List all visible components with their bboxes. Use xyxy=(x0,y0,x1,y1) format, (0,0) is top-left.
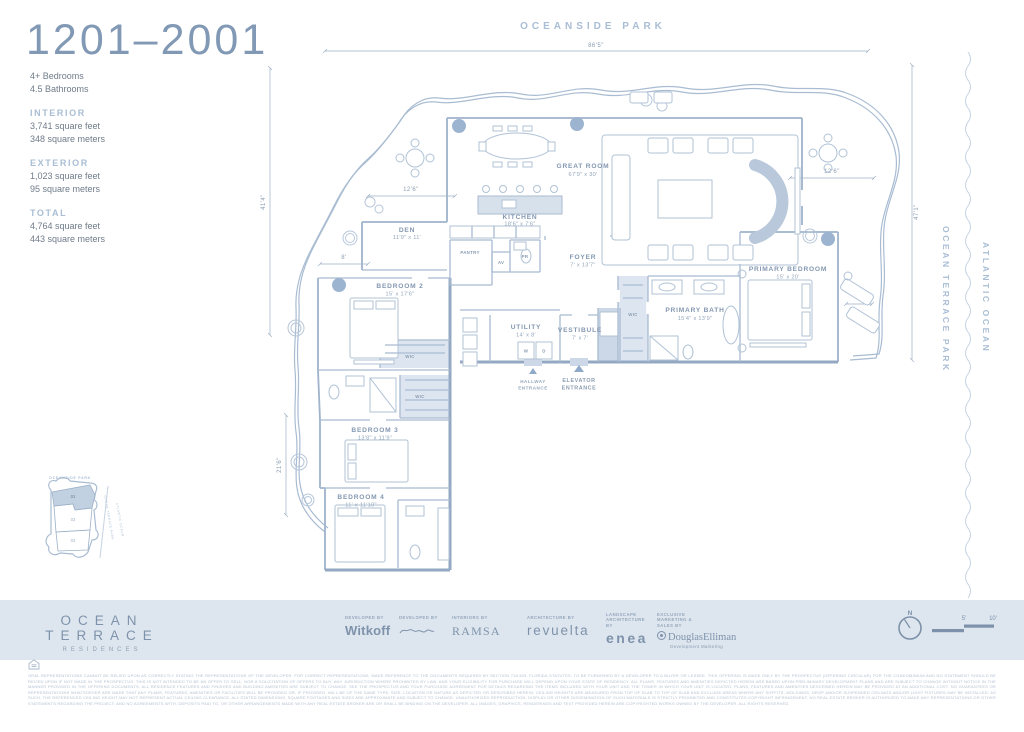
oceanside-park-label: OCEANSIDE PARK xyxy=(468,21,718,32)
svg-text:67'9" x 30': 67'9" x 30' xyxy=(569,172,598,178)
credit-ramsa: INTERIORS BY RAMSA xyxy=(452,615,501,639)
room-utility: UTILITY xyxy=(511,324,542,331)
keymap-park-label: OCEANSIDE PARK xyxy=(49,476,91,480)
scale-10ft-label: 10' xyxy=(989,616,997,622)
site-key-map: OCEANSIDE PARK 01 02 03 OCEAN TERRACE PA… xyxy=(18,468,128,576)
svg-text:14' x 8': 14' x 8' xyxy=(516,333,536,339)
credit-ramsa-caption: INTERIORS BY xyxy=(452,615,501,620)
enea-logo: enea xyxy=(606,630,652,646)
floorplan-page: 1201–2001 4+ Bedrooms 4.5 Bathrooms INTE… xyxy=(0,0,1024,732)
room-primary-bath: PRIMARY BATH xyxy=(665,307,724,314)
credit-developer2-caption: DEVELOPED BY xyxy=(399,615,438,620)
credit-witkoff: DEVELOPED BY Witkoff xyxy=(345,615,390,638)
interior-sqft: 3,741 square feet xyxy=(30,120,105,133)
legal-disclaimer: ORAL REPRESENTATIONS CANNOT BE RELIED UP… xyxy=(28,673,996,707)
shoreline-wave-divider xyxy=(960,52,976,600)
exterior-sqft: 1,023 square feet xyxy=(30,170,105,183)
dim-right-side: 47'1" xyxy=(914,204,920,220)
douglas-elliman-logo: DouglasElliman xyxy=(657,631,736,643)
svg-text:15' x 17'6": 15' x 17'6" xyxy=(386,292,415,298)
footer-band: OCEAN TERRACE RESIDENCES DEVELOPED BY Wi… xyxy=(0,600,1024,660)
svg-text:7' x 13'7": 7' x 13'7" xyxy=(570,263,595,269)
hallway-entrance-line1: HALLWAY xyxy=(520,379,546,384)
witkoff-logo: Witkoff xyxy=(345,623,390,638)
keymap-unit-02: 02 xyxy=(71,517,76,522)
exterior-sqm: 95 square meters xyxy=(30,183,105,196)
kitchen-furniture xyxy=(450,186,562,239)
washer-label: W xyxy=(524,349,529,354)
dim-top: 86'5" xyxy=(588,43,604,49)
credit-elliman: EXCLUSIVE MARKETING & SALES BY DouglasEl… xyxy=(657,612,736,649)
room-pr: PR xyxy=(522,254,529,259)
room-wic-bedroom2: WIC xyxy=(405,354,415,359)
scale-bar: 5' 10' xyxy=(930,610,1002,638)
svg-text:11'9" x 11': 11'9" x 11' xyxy=(393,235,421,241)
credit-enea: LANDSCAPE ARCHITECTURE BY enea xyxy=(606,612,652,646)
bedrooms-line: 4+ Bedrooms xyxy=(30,70,105,83)
room-pantry: PANTRY xyxy=(460,250,479,255)
revuelta-logo: revuelta xyxy=(527,623,589,638)
entrance-labels: HALLWAY ENTRANCE ELEVATOR ENTRANCE xyxy=(518,365,596,392)
brand-sub: RESIDENCES xyxy=(26,647,178,653)
room-foyer: FOYER xyxy=(570,254,597,261)
elevator-entrance-line1: ELEVATOR xyxy=(562,378,595,384)
room-den: DEN xyxy=(399,227,415,234)
total-sqft: 4,764 square feet xyxy=(30,220,105,233)
room-bedroom3: BEDROOM 3 xyxy=(351,427,398,434)
compass-north-label: N xyxy=(908,610,913,617)
room-vestibule: VESTIBULE xyxy=(558,327,602,334)
svg-text:7' x 7': 7' x 7' xyxy=(572,336,588,342)
compass-icon: N xyxy=(895,606,925,642)
dryer-label: D xyxy=(542,349,545,354)
elliman-sub: Development Marketing xyxy=(657,644,736,649)
elevator-entrance-line2: ENTRANCE xyxy=(562,386,597,392)
svg-text:11' x 11'10": 11' x 11'10" xyxy=(345,503,376,509)
unit-range-title: 1201–2001 xyxy=(26,16,268,65)
exterior-label: EXTERIOR xyxy=(30,157,105,170)
svg-text:15'4" x 13'9": 15'4" x 13'9" xyxy=(678,316,713,322)
room-primary-bedroom: PRIMARY BEDROOM xyxy=(749,266,827,273)
room-bedroom2: BEDROOM 2 xyxy=(376,283,423,290)
credit-developer2: DEVELOPED BY xyxy=(399,615,438,642)
room-wic-primary: WIC xyxy=(628,312,638,317)
total-label: TOTAL xyxy=(30,207,105,220)
spec-panel: 4+ Bedrooms 4.5 Bathrooms INTERIOR 3,741… xyxy=(30,70,105,246)
dim-bedroom2-terrace: 8' xyxy=(341,255,346,261)
scale-5ft-label: 5' xyxy=(962,616,966,622)
credit-revuelta: ARCHITECTURE BY revuelta xyxy=(527,615,589,638)
room-bedroom4: BEDROOM 4 xyxy=(337,494,384,501)
svg-text:15' x 20': 15' x 20' xyxy=(776,275,799,281)
keymap-unit-01: 01 xyxy=(71,494,76,499)
interior-label: INTERIOR xyxy=(30,107,105,120)
dim-den-terrace: 12'6" xyxy=(403,187,419,193)
equal-housing-icon xyxy=(28,659,40,670)
elliman-mark-icon xyxy=(657,631,666,640)
svg-text:18'6" x 7'6": 18'6" x 7'6" xyxy=(504,222,535,228)
dim-left-upper: 41'4" xyxy=(261,194,267,210)
dim-left-lower: 21'6" xyxy=(277,457,283,473)
room-av: AV xyxy=(498,260,504,265)
brand-logo: OCEAN TERRACE RESIDENCES xyxy=(26,613,178,653)
interior-sqm: 348 square meters xyxy=(30,133,105,146)
total-sqm: 443 square meters xyxy=(30,233,105,246)
room-wic-bedroom3: WIC xyxy=(415,394,425,399)
keymap-atlantic-ocean: ATLANTIC OCEAN xyxy=(115,503,125,537)
ocean-terrace-park-label: OCEAN TERRACE PARK xyxy=(941,226,951,376)
credit-enea-caption: LANDSCAPE ARCHITECTURE BY xyxy=(606,612,652,628)
keymap-unit-03: 03 xyxy=(71,538,76,543)
hallway-entrance-line2: ENTRANCE xyxy=(518,386,548,391)
credit-elliman-caption: EXCLUSIVE MARKETING & SALES BY xyxy=(657,612,703,628)
atlantic-ocean-label: ATLANTIC OCEAN xyxy=(981,242,991,362)
svg-text:13'8" x 11'9": 13'8" x 11'9" xyxy=(358,436,392,442)
room-great-room: GREAT ROOM xyxy=(557,163,610,170)
room-kitchen: KITCHEN xyxy=(503,214,538,221)
bathrooms-line: 4.5 Bathrooms xyxy=(30,83,105,96)
credit-revuelta-caption: ARCHITECTURE BY xyxy=(527,615,589,620)
ramsa-logo: RAMSA xyxy=(452,624,501,639)
terra-squiggle-logo xyxy=(399,625,435,637)
floor-plan: 86'5" 41'4" 21'6" 47'1" 12'6" 8' 12'6" 8… xyxy=(250,40,930,600)
brand-name: OCEAN TERRACE xyxy=(26,613,178,643)
credit-witkoff-caption: DEVELOPED BY xyxy=(345,615,390,620)
